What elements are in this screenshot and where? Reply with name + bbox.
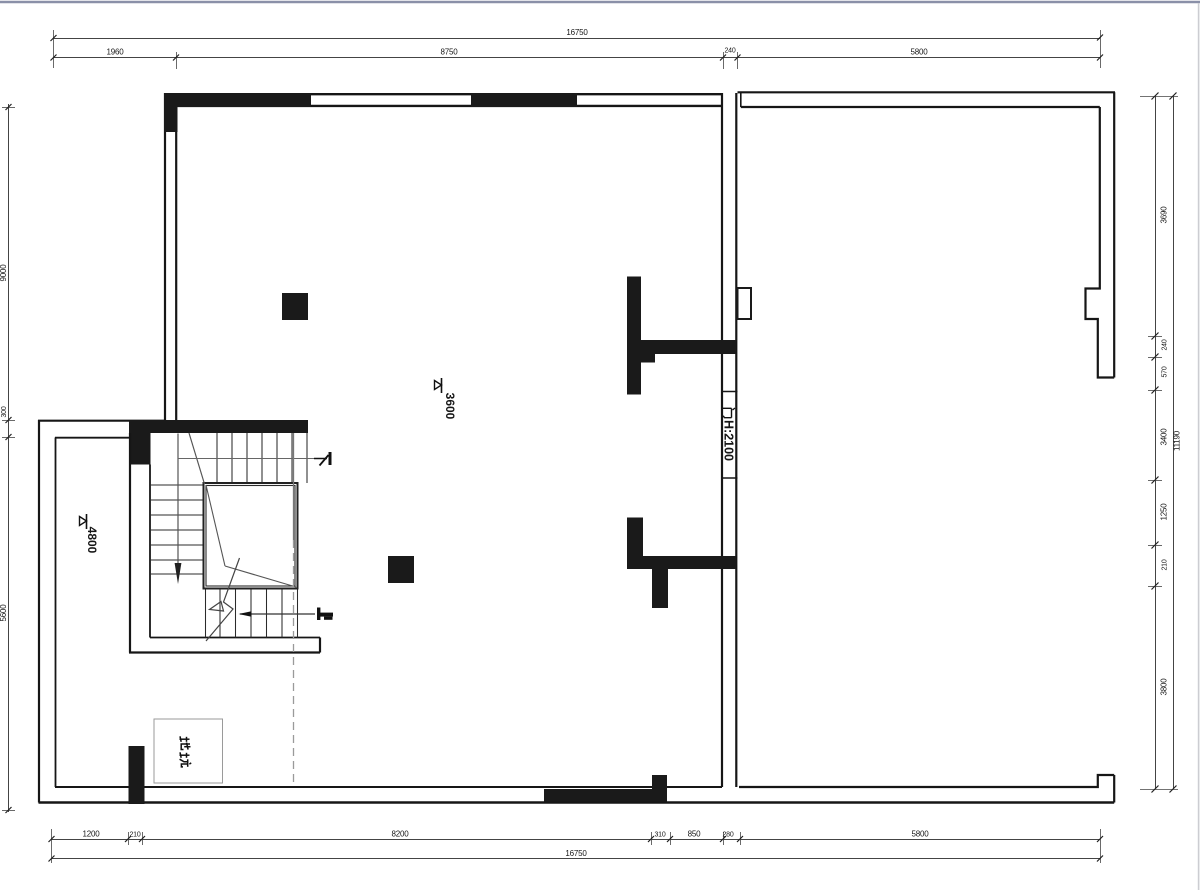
svg-text:1960: 1960 <box>107 48 125 57</box>
svg-text:5800: 5800 <box>912 830 930 839</box>
svg-text:H:2100: H:2100 <box>722 420 736 461</box>
svg-text:3690: 3690 <box>1160 206 1169 224</box>
svg-text:5600: 5600 <box>0 604 8 622</box>
svg-text:11190: 11190 <box>1173 430 1182 451</box>
svg-text:850: 850 <box>688 830 701 839</box>
svg-text:570: 570 <box>1162 366 1169 377</box>
svg-text:310: 310 <box>654 832 665 839</box>
svg-text:210: 210 <box>129 832 140 839</box>
svg-text:9000: 9000 <box>0 264 8 282</box>
svg-text:8200: 8200 <box>392 830 410 839</box>
svg-text:16750: 16750 <box>566 28 588 37</box>
svg-text:5800: 5800 <box>911 48 929 57</box>
svg-text:3800: 3800 <box>1160 678 1169 696</box>
svg-text:240: 240 <box>1162 339 1169 350</box>
svg-text:8750: 8750 <box>441 48 459 57</box>
svg-text:16750: 16750 <box>565 849 587 858</box>
svg-text:210: 210 <box>1162 559 1169 570</box>
svg-text:1200: 1200 <box>83 830 101 839</box>
svg-text:4800: 4800 <box>85 527 99 554</box>
svg-text:3400: 3400 <box>1160 428 1169 446</box>
svg-text:3600: 3600 <box>443 393 457 420</box>
svg-text:280: 280 <box>722 832 733 839</box>
svg-text:1250: 1250 <box>1160 503 1169 521</box>
svg-text:300: 300 <box>1 406 8 417</box>
svg-text:240: 240 <box>724 48 735 55</box>
